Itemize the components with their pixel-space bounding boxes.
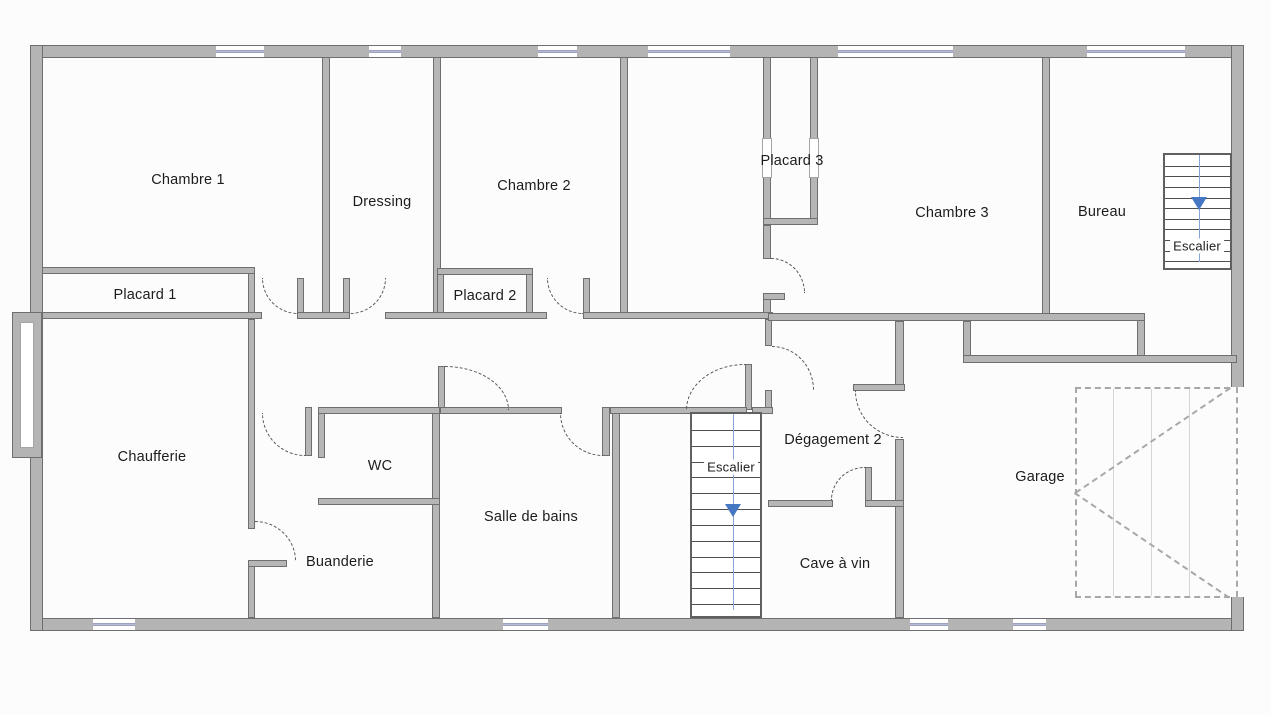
room-label-degagement-2: Dégagement 2: [784, 432, 882, 448]
room-label-salle-de-bains: Salle de bains: [484, 509, 578, 525]
wall-degagement-entry-upper: [765, 319, 772, 346]
room-label-chaufferie: Chaufferie: [118, 449, 187, 465]
wall-cave-north-left: [768, 500, 833, 507]
wall-degagement-garage-upper: [895, 321, 904, 391]
room-label-placard-3: Placard 3: [760, 153, 823, 169]
chimney-flue: [20, 322, 34, 448]
window: [1013, 619, 1046, 630]
room-label-cave-a-vin: Cave à vin: [800, 556, 871, 572]
garage-opening-dash: [1236, 387, 1238, 597]
door-pier: [305, 407, 312, 456]
door-arc-passage: [262, 413, 305, 456]
wall-placard1-top: [42, 267, 255, 274]
stair-tread: [692, 604, 760, 605]
wall-chaufferie-right-lower: [248, 560, 255, 618]
wall-garage-connector: [963, 321, 971, 357]
room-label-placard-2: Placard 2: [453, 288, 516, 304]
garage-door-panel-line: [1113, 389, 1114, 596]
room-label-dressing: Dressing: [353, 194, 412, 210]
wall-chambre2-hall: [620, 57, 628, 319]
stair-tread: [692, 557, 760, 558]
wall-corridor-north-d: [583, 312, 773, 319]
stair-tread: [692, 493, 760, 494]
stair-tread: [1165, 166, 1230, 167]
window-glass: [1013, 623, 1046, 626]
window: [1087, 46, 1185, 57]
wall-placard2-top: [437, 268, 533, 275]
door-stub: [248, 560, 287, 567]
wall-sdb-right: [612, 407, 620, 618]
window-glass: [648, 50, 730, 53]
door-stub: [853, 384, 905, 391]
stair-tread: [1165, 176, 1230, 177]
exterior-wall-bottom: [30, 618, 1244, 631]
wall-wc-bottom: [318, 498, 440, 505]
wall-chambre1-dressing: [322, 57, 330, 314]
stair-tread: [1165, 229, 1230, 230]
stair-tread: [692, 477, 760, 478]
room-label-chambre-1: Chambre 1: [151, 172, 225, 188]
stair-tread: [692, 541, 760, 542]
stairs-direction-arrow: [1191, 197, 1207, 210]
room-label-escalier-milieu: Escalier: [704, 460, 758, 475]
wall-corridor-north-a: [42, 312, 262, 319]
wall-wc-left: [318, 407, 325, 458]
door-arc-chambre1: [262, 278, 298, 314]
door-arc-cave: [831, 467, 865, 500]
stair-tread: [1165, 261, 1230, 262]
window: [369, 46, 401, 57]
wall-bureau-jog: [1137, 315, 1145, 357]
room-label-chambre-2: Chambre 2: [497, 178, 571, 194]
door-arc-garage: [855, 391, 903, 438]
window: [503, 619, 548, 630]
window-glass: [838, 50, 953, 53]
room-label-escalier-haut: Escalier: [1170, 239, 1224, 254]
window-glass: [503, 623, 548, 626]
window-glass: [910, 623, 948, 626]
window-glass: [93, 623, 135, 626]
window: [910, 619, 948, 630]
garage-door-diagonal: [1075, 387, 1231, 493]
door-arc-corridor-2: [686, 364, 745, 410]
stair-tread: [692, 588, 760, 589]
stairs-direction-arrow: [725, 504, 741, 517]
door-arc-chambre2: [547, 278, 583, 314]
window: [838, 46, 953, 57]
garage-door-dash-bottom: [1075, 596, 1230, 598]
window: [216, 46, 264, 57]
garage-door-panel-line: [1151, 389, 1152, 596]
window: [648, 46, 730, 57]
wall-degagement-garage-lower: [895, 439, 904, 618]
wall-hall-chambre3-upper: [763, 225, 771, 259]
wall-chaufferie-right-upper: [248, 319, 255, 529]
room-label-buanderie: Buanderie: [306, 554, 374, 570]
garage-door-dash-top: [1075, 387, 1230, 389]
wall-placard3-bottom: [763, 218, 818, 225]
door-arc-chambre3: [771, 258, 805, 293]
window-glass: [1087, 50, 1185, 53]
room-label-placard-1: Placard 1: [113, 287, 176, 303]
stair-tread: [692, 430, 760, 431]
garage-door-panel-line: [1189, 389, 1190, 596]
door-stub: [763, 293, 785, 300]
stair-tread: [692, 446, 760, 447]
window: [538, 46, 577, 57]
wall-corridor-north-b: [297, 312, 350, 319]
door-arc-sdb: [560, 413, 603, 456]
staircase-middle: [690, 412, 762, 618]
room-label-chambre-3: Chambre 3: [915, 205, 989, 221]
wall-wc-sdb: [432, 407, 440, 618]
door-arc-dressing: [350, 278, 386, 314]
stair-tread: [1165, 187, 1230, 188]
wall-corridor-north-c: [385, 312, 547, 319]
window-glass: [369, 50, 401, 53]
corridor-door-stub: [745, 364, 752, 410]
door-arc-degagement: [772, 346, 814, 390]
stair-tread: [692, 525, 760, 526]
window-glass: [216, 50, 264, 53]
wall-wc-top: [318, 407, 440, 414]
room-label-bureau: Bureau: [1078, 204, 1126, 220]
door-arc-corridor-1: [445, 366, 509, 410]
door-arc-buanderie: [255, 521, 296, 561]
stair-tread: [1165, 219, 1230, 220]
window: [93, 619, 135, 630]
wall-cave-north-right: [865, 500, 904, 507]
window-glass: [538, 50, 577, 53]
wall-chambre3-south: [768, 313, 1145, 321]
room-label-wc: WC: [368, 458, 393, 474]
stair-tread: [692, 572, 760, 573]
wall-chambre3-bureau: [1042, 57, 1050, 315]
corridor-door-stub: [438, 366, 445, 410]
floor-plan: Chambre 1DressingChambre 2Placard 3Chamb…: [0, 0, 1271, 715]
wall-garage-north: [963, 355, 1237, 363]
door-pier: [602, 407, 610, 456]
exterior-wall-top: [30, 45, 1244, 58]
room-label-garage: Garage: [1015, 469, 1065, 485]
